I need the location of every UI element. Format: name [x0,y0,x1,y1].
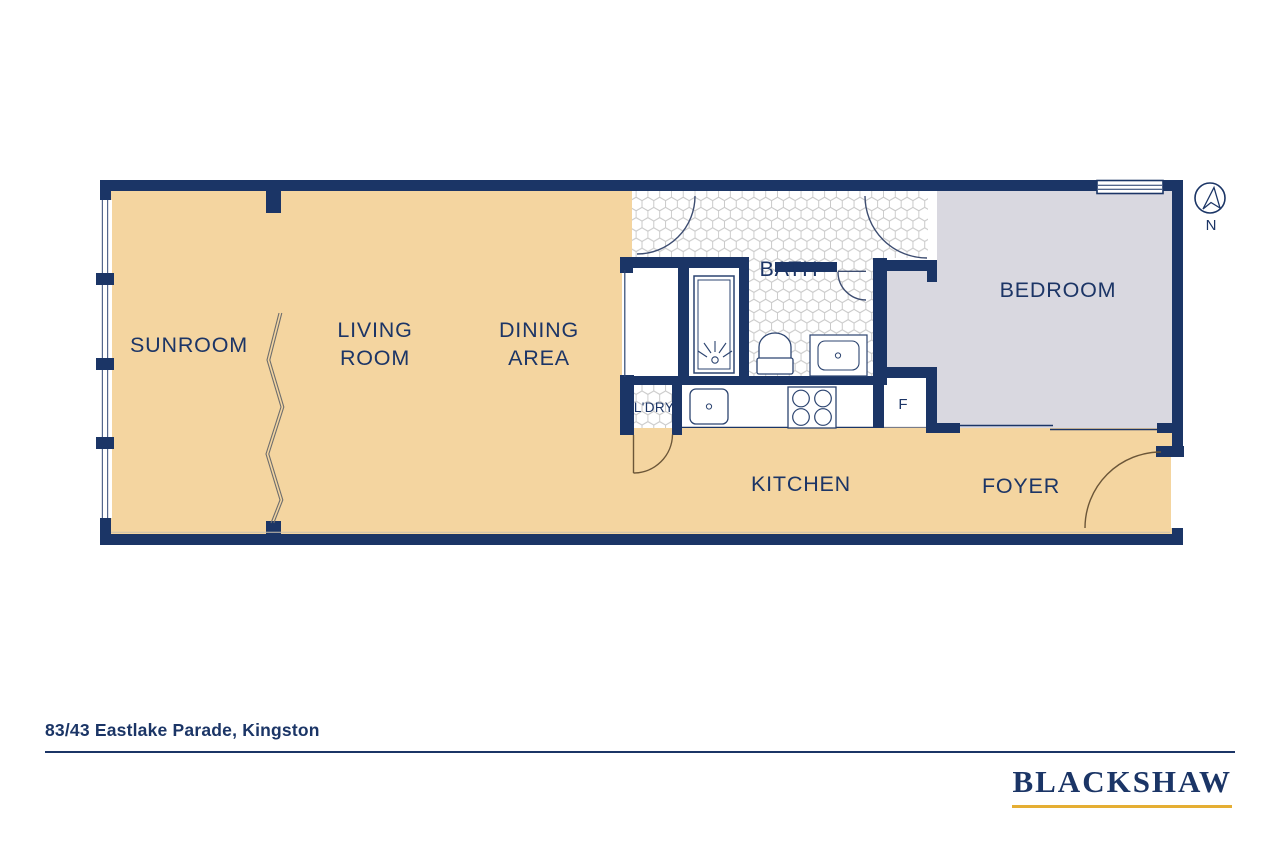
living-room-label-line2: ROOM [340,346,410,370]
north-arrow-icon: N [1195,183,1225,234]
wall-fridge-right [926,367,937,428]
wall-bedroom-door-stub [927,260,937,282]
floor-plan-drawing: N SUNROOM LIVING ROOM DINING AREA BATH B… [0,0,1280,710]
blackshaw-logo: BLACKSHAW [1012,764,1232,808]
closet-floor [632,268,679,378]
kitchen-foyer-floor [622,428,1172,534]
wall-bath-bedroom [873,258,887,385]
foyer-label: FOYER [982,474,1060,498]
shower [694,276,734,373]
kitchen-label: KITCHEN [751,472,851,496]
bedroom-nook-floor [887,271,937,367]
divider-stub-top [266,191,281,213]
kitchen-sink [690,389,728,424]
vanity-sink [810,335,867,376]
toilet [757,333,793,374]
dining-area-label-line1: DINING [499,318,579,342]
wall-bedroom-bottom-right-stub [1157,423,1173,433]
sunroom-window-wall [96,200,114,518]
wall-fridge-left [873,378,884,428]
laundry-label: L'DRY [634,400,674,415]
wall-shower-right [739,257,749,378]
floor-plan-page: N SUNROOM LIVING ROOM DINING AREA BATH B… [0,0,1280,853]
window-mullion [96,437,114,449]
stove [788,387,836,428]
entry-door-opening [1171,457,1184,528]
fridge-label: F [898,396,907,413]
bath-label: BATH [760,257,819,281]
bath-corridor-tiles [632,191,928,258]
bedroom-label: BEDROOM [1000,278,1117,302]
window-mullion [96,273,114,285]
bedroom-window [1097,181,1163,194]
dining-area-label-line2: AREA [508,346,570,370]
north-label: N [1206,217,1217,234]
window-mullion [96,358,114,370]
footer-divider-line [45,751,1235,753]
property-address: 83/43 Eastlake Parade, Kingston [45,720,320,741]
corridor-threshold-floor [622,191,632,257]
sunroom-label: SUNROOM [130,333,248,357]
wall-bottom [100,534,1183,545]
wall-counter-back [620,376,887,385]
living-room-label-line1: LIVING [337,318,412,342]
wall-bedroom-bottom-left-stub [926,423,960,433]
bedroom-doorway [928,183,937,258]
wall-top [100,180,1183,191]
wall-closet-shower-divider [678,262,689,378]
bedroom-floor [937,191,1172,428]
divider-stub-bottom [266,521,281,535]
